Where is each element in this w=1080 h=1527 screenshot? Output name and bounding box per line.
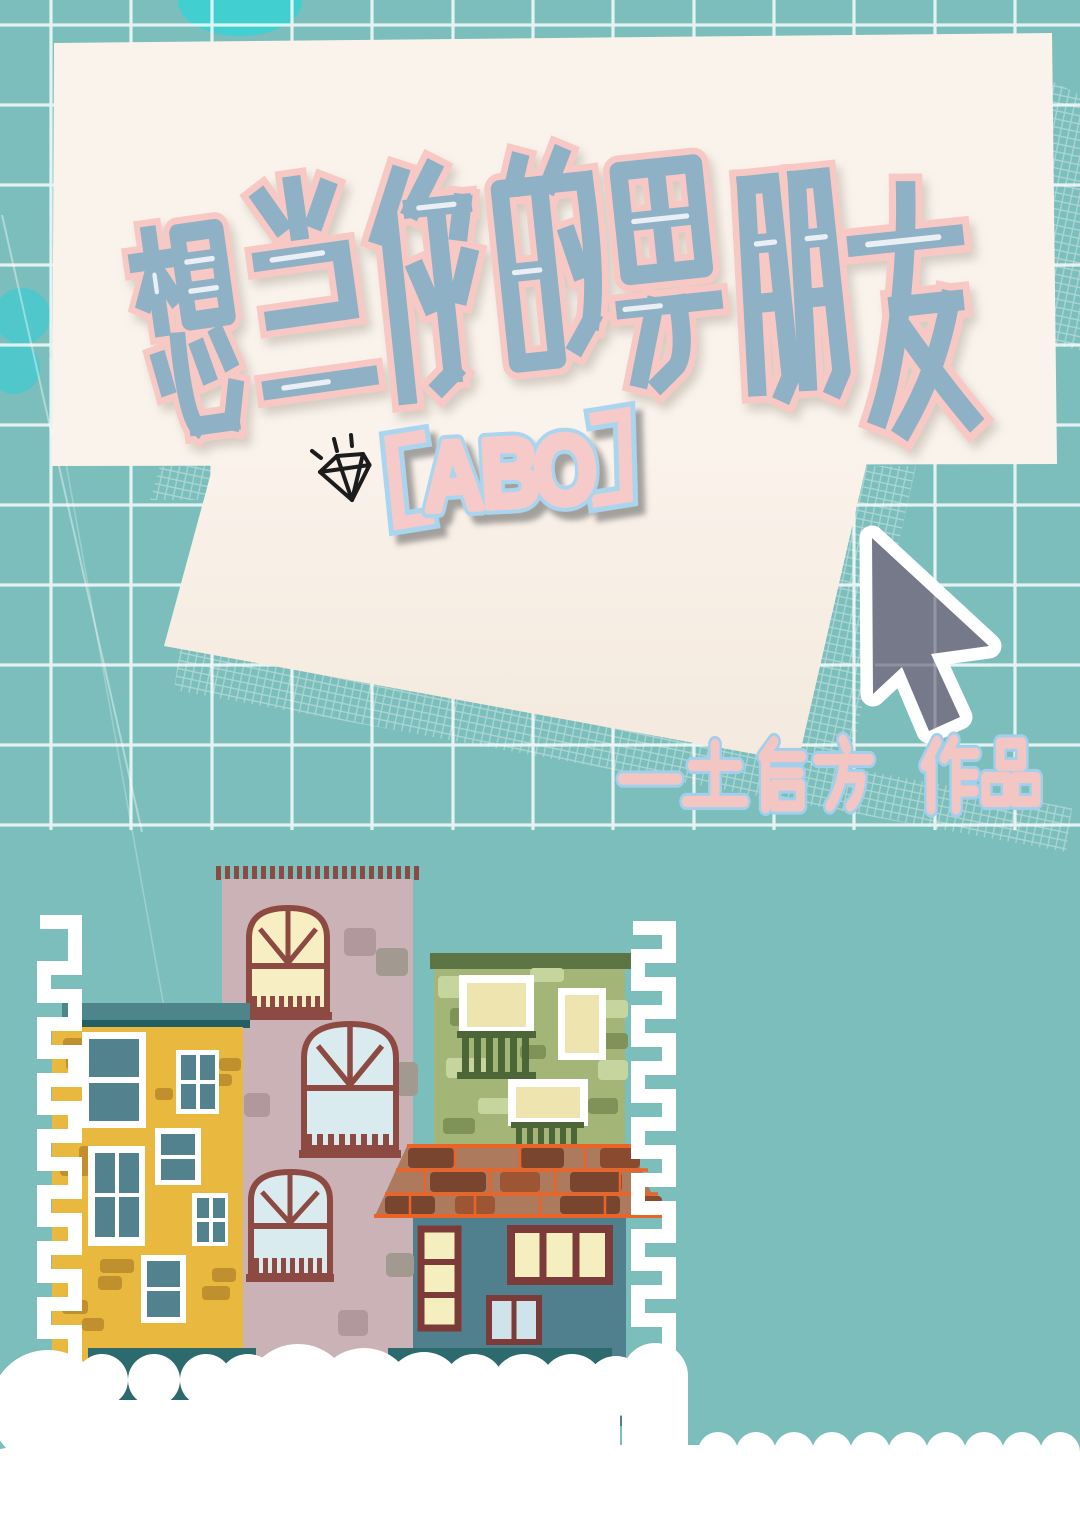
svg-text:A: A <box>421 420 485 531</box>
svg-text:O: O <box>530 414 599 525</box>
